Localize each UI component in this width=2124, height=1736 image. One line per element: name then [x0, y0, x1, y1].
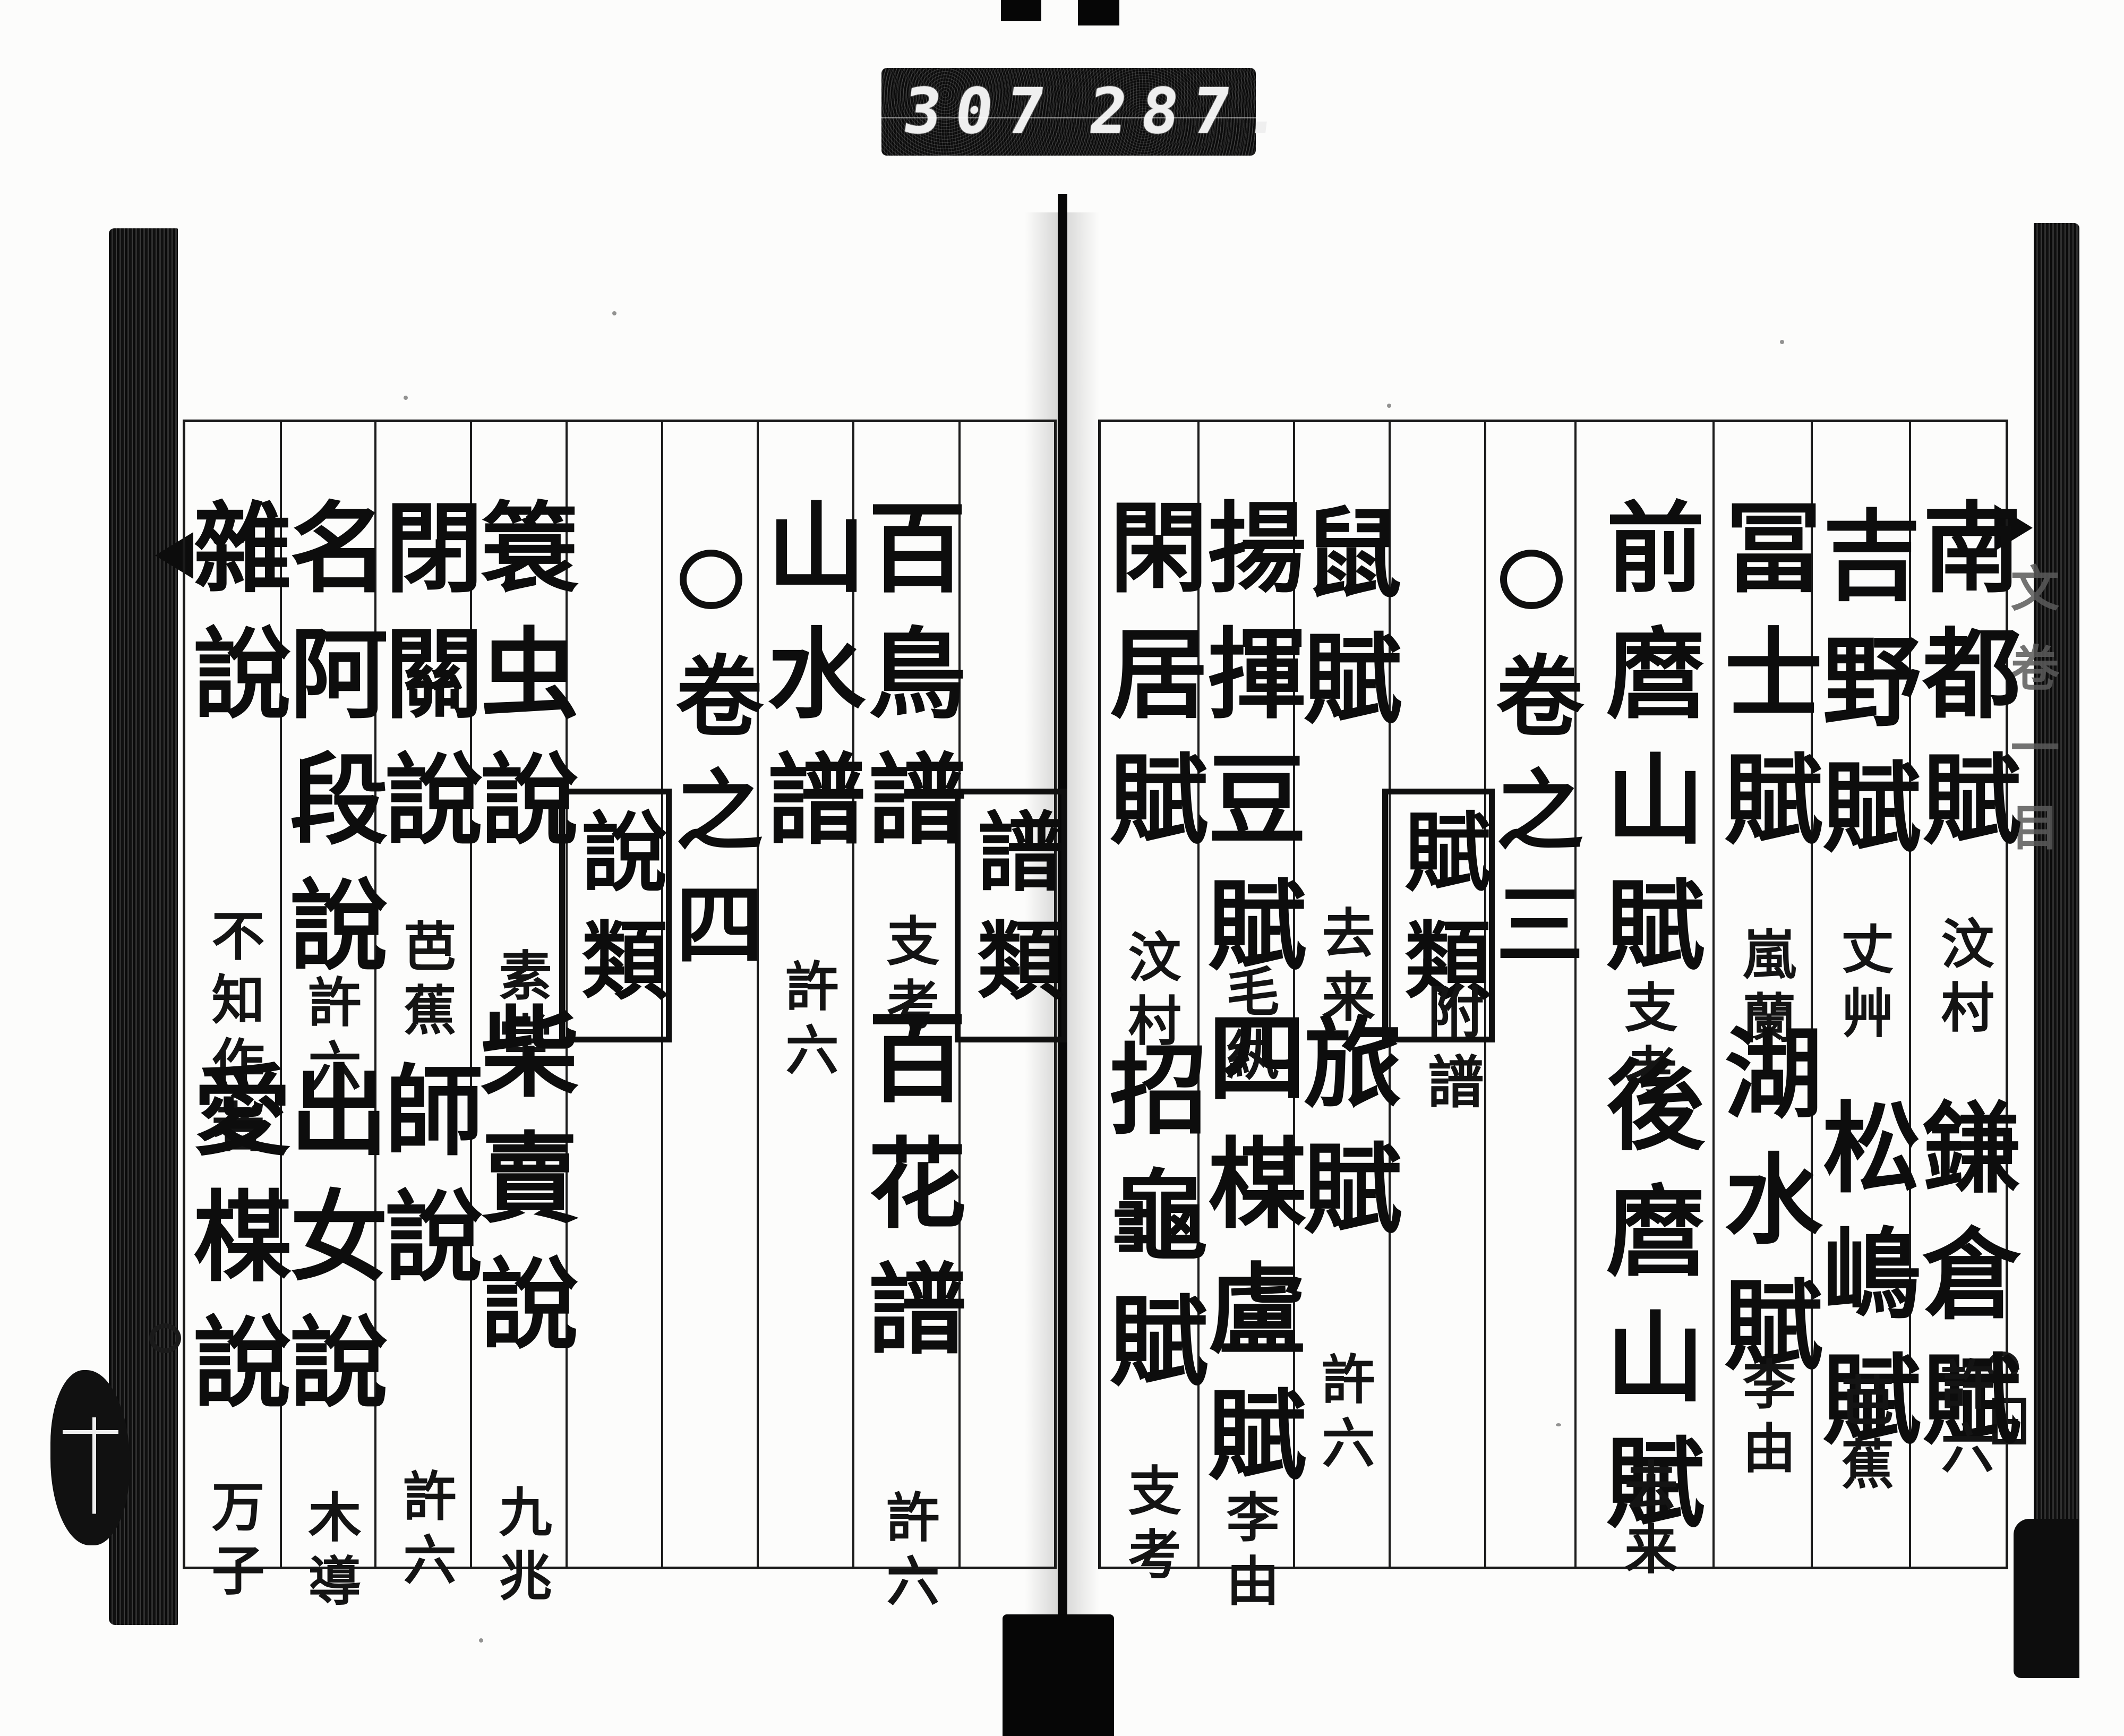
entry-title: 百鳥譜 — [859, 497, 957, 874]
scan-speck — [1556, 1423, 1561, 1426]
scan-speck — [612, 311, 616, 315]
entry-author: 汶村 — [1123, 929, 1176, 1057]
category-box: 說類 — [559, 789, 672, 1042]
category-label: 譜類 — [968, 807, 1054, 1024]
toc-column: 卷之三 — [1484, 422, 1577, 1567]
left-page: 譜類百鳥譜支考百花譜許六山水譜許六卷之四說類簑虫說素堂柴賣說九兆閉關說芭蕉師說許… — [183, 420, 1057, 1569]
entry-author: 許六 — [881, 1490, 934, 1617]
frame-counter-left-digits: 307 — [900, 75, 1063, 147]
entry-author: 許六 — [398, 1468, 451, 1596]
film-frame-counter: 307 287. — [881, 68, 1256, 156]
entry-title: 師說 — [375, 1059, 474, 1311]
toc-column: 賦類附譜 — [1389, 422, 1486, 1567]
scanned-book-spread: 307 287. 文卷一目 譜類百鳥譜支考百花譜許六山水譜許六卷之四說類簑虫說素… — [0, 0, 2124, 1736]
entry-author: 九兆 — [493, 1484, 546, 1612]
entry-title: 出女說 — [280, 1059, 379, 1437]
entry-author: 李由 — [1737, 1357, 1791, 1484]
toc-column: 名阿段說許六出女說木導 — [280, 422, 376, 1567]
entry-author: 丈艸 — [1836, 921, 1889, 1049]
entry-author: 許六 — [1316, 1352, 1369, 1479]
right-fore-edge — [2034, 223, 2079, 1625]
toc-column: 前麿山賦支考後麿山賦去来 — [1574, 422, 1715, 1567]
scan-speck — [1387, 404, 1391, 408]
entry-title: 揚揮豆賦 — [1198, 497, 1297, 1000]
entry-author: 芭蕉 — [398, 919, 451, 1046]
entry-title: 柴賣說 — [471, 1001, 569, 1379]
right-page: 南都賦汶村鎌倉賦許六吉野賦丈艸松嶋賦芭蕉冨士賦嵐蘭湖水賦李由前麿山賦支考後麿山賦… — [1098, 420, 2008, 1569]
entry-author: 芭蕉 — [1836, 1373, 1889, 1500]
category-label: 說類 — [572, 807, 658, 1024]
entry-title: 吉野賦 — [1813, 504, 1911, 882]
scan-speck — [479, 1638, 483, 1643]
entry-author: 去来 — [1619, 1458, 1672, 1585]
entry-title: 南都賦 — [1913, 497, 2011, 874]
entry-title: 簑虫說 — [471, 497, 569, 874]
entry-title: 招龜賦 — [1100, 1038, 1198, 1416]
right-fore-edge-smudge — [2014, 1519, 2079, 1678]
entry-author: 汶村 — [1935, 916, 1989, 1044]
toc-column: 南都賦汶村鎌倉賦許六 — [1909, 422, 2013, 1567]
volume-circle-mark — [1500, 550, 1563, 609]
frame-counter-right-digits: 287. — [1085, 75, 1300, 147]
toc-column: 百鳥譜支考百花譜許六 — [852, 422, 961, 1567]
entry-author: 木導 — [303, 1490, 356, 1617]
volume-label: 卷之四 — [667, 651, 755, 993]
category-box: 譜類 — [955, 789, 1067, 1042]
scan-speck — [1780, 340, 1784, 344]
entry-title: 旅賦 — [1294, 1012, 1392, 1263]
toc-column: 雜說不知作者愛楳說万子 — [185, 422, 280, 1567]
bottom-binding-mark — [1003, 1614, 1114, 1736]
category-subnote: 附譜 — [1422, 982, 1478, 1123]
entry-title: 愛楳說 — [184, 1059, 282, 1437]
left-margin-circle-mark — [149, 1323, 181, 1353]
entry-title: 山水譜 — [758, 497, 856, 874]
entry-title: 閑居賦 — [1100, 497, 1198, 874]
entry-title: 百花譜 — [859, 1006, 957, 1384]
entry-title: 前麿山賦 — [1597, 497, 1695, 1000]
volume-label: 卷之三 — [1488, 651, 1575, 993]
toc-column: 譜類 — [958, 422, 1061, 1567]
entry-title: 閉關說 — [375, 497, 474, 874]
entry-title: 名阿段說 — [280, 497, 379, 1000]
entry-title: 冨士賦 — [1715, 497, 1813, 874]
entry-title: 鼠賦 — [1294, 502, 1392, 754]
entry-title: 雜說 — [184, 497, 282, 748]
toc-column: 說類 — [566, 422, 663, 1567]
entry-author: 万子 — [206, 1479, 259, 1606]
toc-column: 閉關說芭蕉師說許六 — [374, 422, 472, 1567]
entry-author: 許六 — [1935, 1357, 1989, 1484]
entry-title: 四楳盧賦 — [1198, 1006, 1297, 1510]
entry-title: 湖水賦 — [1715, 1022, 1813, 1400]
entry-author: 許六 — [780, 959, 833, 1086]
toc-column: 揚揮豆賦毛紈四楳盧賦李由 — [1197, 422, 1295, 1567]
entry-author: 李由 — [1221, 1490, 1274, 1617]
top-edge-tab — [1001, 0, 1041, 21]
top-edge-tab — [1078, 0, 1119, 25]
toc-column: 簑虫說素堂柴賣說九兆 — [470, 422, 568, 1567]
scan-speck — [404, 396, 408, 400]
volume-circle-mark — [680, 550, 742, 609]
entry-author: 支考 — [1123, 1463, 1176, 1590]
toc-column: 卷之四 — [661, 422, 759, 1567]
toc-column: 冨士賦嵐蘭湖水賦李由 — [1712, 422, 1813, 1567]
scanline-artifact — [881, 117, 1256, 118]
toc-column: 山水譜許六 — [757, 422, 854, 1567]
toc-column: 鼠賦去来旅賦許六 — [1293, 422, 1391, 1567]
toc-column: 吉野賦丈艸松嶋賦芭蕉 — [1811, 422, 1911, 1567]
toc-column: 閑居賦汶村招龜賦支考 — [1101, 422, 1197, 1567]
